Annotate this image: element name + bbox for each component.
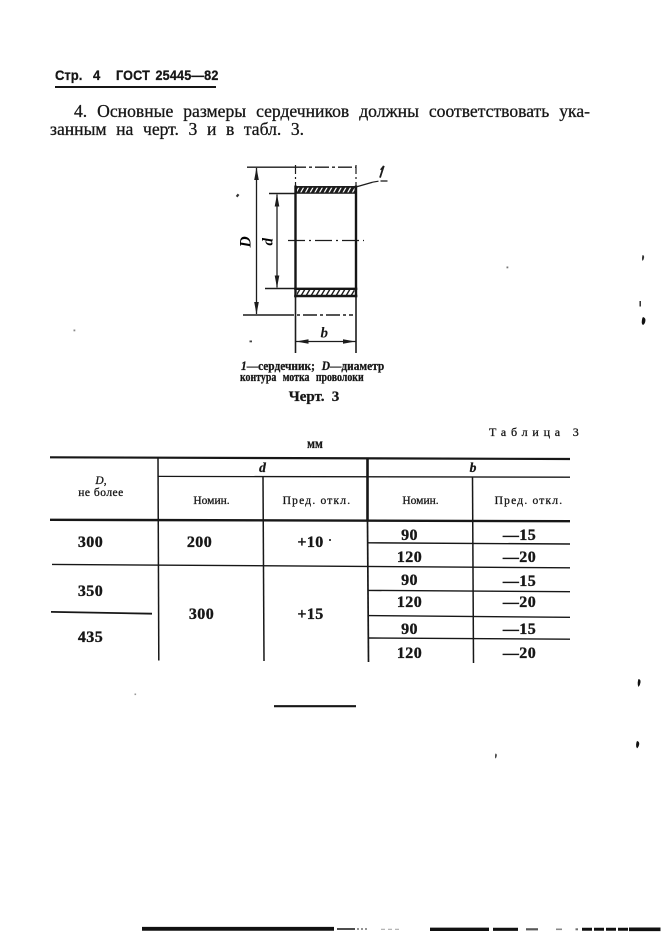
svg-text:d: d [261,238,277,246]
svg-text:D: D [238,236,255,248]
svg-text:b: b [321,326,329,342]
